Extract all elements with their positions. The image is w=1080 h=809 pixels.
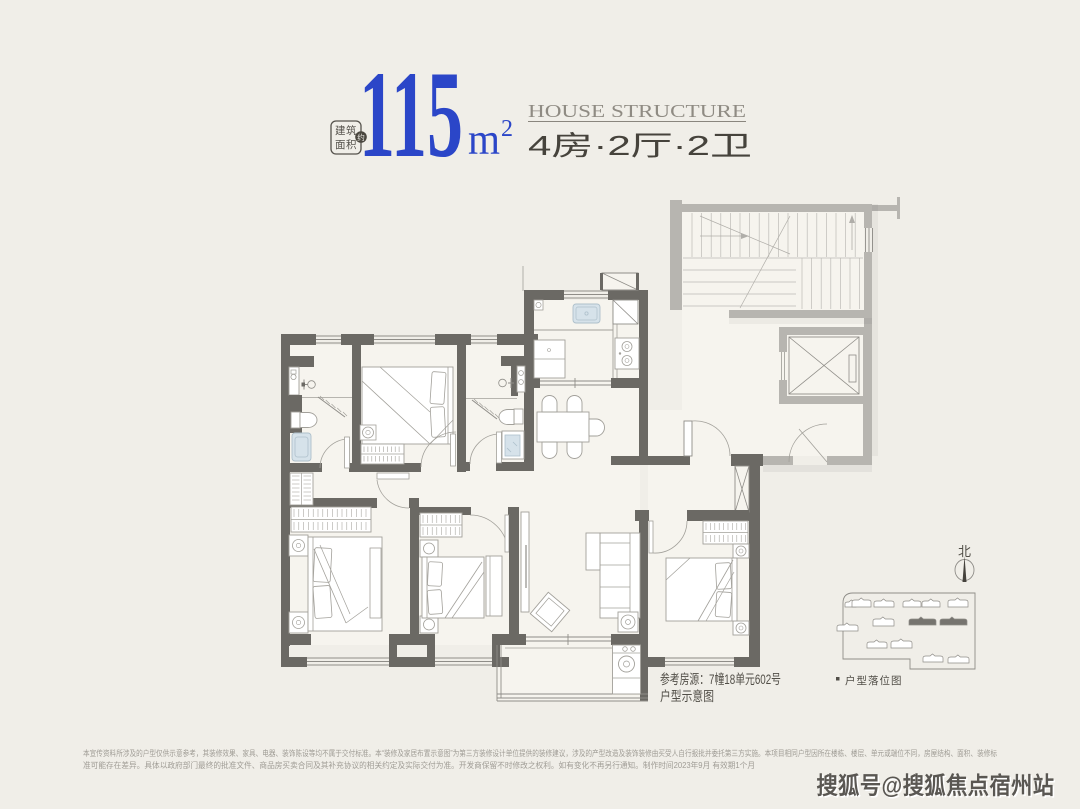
svg-text:HOUSE STRUCTURE: HOUSE STRUCTURE (528, 101, 746, 121)
svg-text:户型示意图: 户型示意图 (660, 688, 714, 704)
svg-text:建筑: 建筑 (335, 124, 357, 137)
svg-text:115: 115 (359, 46, 463, 183)
svg-text:搜狐号@搜狐焦点宿州站: 搜狐号@搜狐焦点宿州站 (817, 772, 1055, 799)
svg-text:本宣传资料所涉及的户型仅供示意参考，其装修效果、家具、电器、: 本宣传资料所涉及的户型仅供示意参考，其装修效果、家具、电器、装饰陈设等均不属于交… (83, 748, 997, 758)
svg-text:户型落位图: 户型落位图 (845, 674, 903, 687)
svg-text:m: m (468, 115, 500, 164)
svg-text:面积: 面积 (335, 139, 357, 151)
svg-text:准可能存在差异。具体以政府部门最终的批准文件、商品房买卖合同: 准可能存在差异。具体以政府部门最终的批准文件、商品房买卖合同及其补充协议的相关约… (83, 760, 755, 770)
svg-text:参考房源：7幢18单元602号: 参考房源：7幢18单元602号 (660, 671, 781, 687)
svg-text:4房·2厅·2卫: 4房·2厅·2卫 (528, 130, 752, 161)
svg-text:2: 2 (501, 116, 513, 142)
